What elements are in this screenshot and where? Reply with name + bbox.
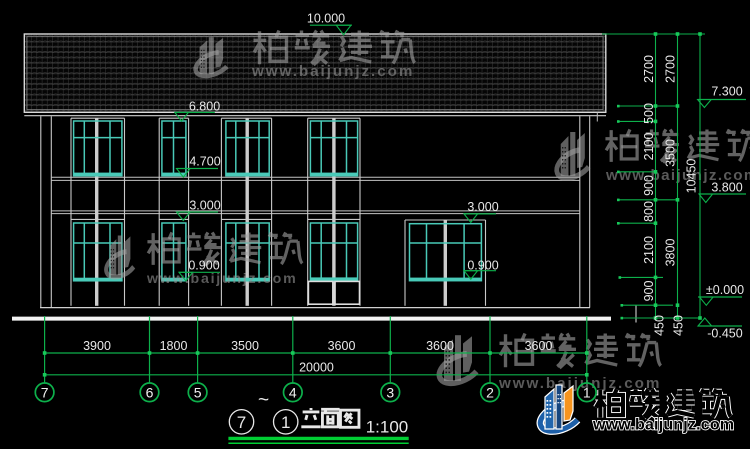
svg-text:20000: 20000	[299, 361, 334, 375]
svg-text:3600: 3600	[328, 339, 356, 353]
svg-text:-0.450: -0.450	[707, 327, 742, 341]
svg-text:1: 1	[281, 413, 290, 432]
svg-text:3.000: 3.000	[467, 200, 498, 214]
svg-text:900: 900	[642, 175, 656, 196]
svg-text:6: 6	[146, 384, 154, 400]
svg-text:1800: 1800	[160, 339, 188, 353]
svg-text:3.800: 3.800	[711, 181, 742, 195]
svg-text:2: 2	[486, 384, 494, 400]
svg-text:5: 5	[194, 384, 202, 400]
svg-text:3600: 3600	[525, 339, 553, 353]
svg-text:2700: 2700	[642, 55, 656, 83]
svg-text:3900: 3900	[83, 339, 111, 353]
svg-text:3800: 3800	[664, 239, 678, 267]
svg-text:±0.000: ±0.000	[706, 283, 744, 297]
svg-text:~: ~	[258, 390, 269, 411]
svg-text:10450: 10450	[685, 159, 699, 194]
svg-text:7: 7	[237, 413, 246, 432]
svg-text:2700: 2700	[664, 55, 678, 83]
svg-text:1:100: 1:100	[366, 418, 409, 437]
svg-text:3500: 3500	[664, 139, 678, 167]
svg-text:0.900: 0.900	[188, 258, 219, 272]
svg-text:6.800: 6.800	[189, 100, 220, 114]
svg-text:7: 7	[41, 384, 49, 400]
svg-text:800: 800	[642, 201, 656, 222]
svg-text:500: 500	[642, 103, 656, 124]
svg-text:www.baijunjz.com: www.baijunjz.com	[146, 271, 297, 287]
svg-text:7.300: 7.300	[711, 85, 742, 99]
svg-text:900: 900	[642, 281, 656, 302]
svg-text:450: 450	[653, 315, 667, 336]
svg-text:2100: 2100	[642, 133, 656, 161]
svg-text:3: 3	[386, 384, 394, 400]
svg-text:450: 450	[672, 315, 686, 336]
svg-text:10.000: 10.000	[307, 12, 345, 26]
svg-text:3600: 3600	[426, 339, 454, 353]
svg-text:4: 4	[289, 384, 297, 400]
svg-text:www.baijunjz.com: www.baijunjz.com	[251, 63, 414, 80]
svg-text:4.700: 4.700	[189, 155, 220, 169]
svg-text:3.000: 3.000	[189, 199, 220, 213]
svg-text:1: 1	[583, 384, 591, 400]
svg-text:3500: 3500	[231, 339, 259, 353]
svg-text:2100: 2100	[642, 236, 656, 264]
svg-text:www.baijunjz.com: www.baijunjz.com	[592, 417, 734, 434]
